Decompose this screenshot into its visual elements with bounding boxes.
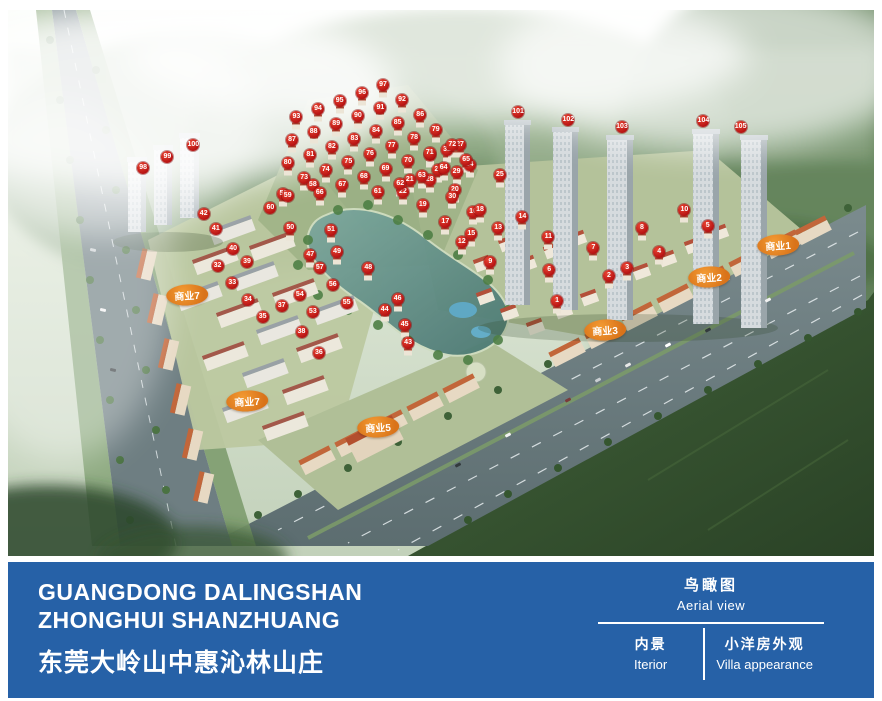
villa-roof (486, 267, 494, 274)
villa-roof (458, 247, 466, 254)
villa-roof (467, 239, 475, 246)
unit-number-marker: 84 (370, 125, 382, 137)
view-selector-panel: 鸟瞰图 Aerial view 内景 Iterior 小洋房外观 Villa a… (598, 574, 824, 680)
unit-number-marker: 39 (241, 256, 253, 268)
villa-roof (379, 90, 387, 97)
unit-number-marker: 10 (678, 204, 690, 216)
project-title-block: GUANGDONG DALINGSHAN ZHONGHUI SHANZHUANG… (38, 578, 362, 679)
unit-number-marker: 63 (416, 170, 428, 182)
unit-number-marker: 29 (451, 166, 463, 178)
project-title-en-line2: ZHONGHUI SHANZHUANG (38, 606, 362, 634)
aerial-photo: 1234567891011121314151617181920212223242… (8, 10, 874, 556)
tab-interior[interactable]: 内景 Iterior (598, 628, 703, 680)
unit-number-marker: 78 (408, 132, 420, 144)
villa-roof (404, 348, 412, 355)
unit-number-marker: 101 (512, 106, 524, 118)
unit-number-marker: 66 (314, 187, 326, 199)
villa-roof (310, 137, 318, 144)
villa-roof (494, 233, 502, 240)
unit-number-marker: 60 (264, 202, 276, 214)
villa-roof (399, 197, 407, 204)
unit-number-marker: 8 (636, 222, 648, 234)
unit-number-marker: 93 (290, 111, 302, 123)
villa-roof (416, 120, 424, 127)
unit-number-marker: 45 (399, 319, 411, 331)
unit-number-marker: 30 (446, 191, 458, 203)
villa-roof (623, 273, 631, 280)
unit-number-marker: 44 (379, 304, 391, 316)
unit-number-marker: 95 (334, 95, 346, 107)
project-title-cn: 东莞大岭山中惠沁林山庄 (38, 643, 362, 679)
villa-roof (426, 185, 434, 192)
current-view-label: 鸟瞰图 Aerial view (598, 574, 824, 624)
villa-roof (518, 222, 526, 229)
unit-number-marker: 15 (465, 228, 477, 240)
unit-number-marker: 61 (372, 186, 384, 198)
unit-number-marker: 86 (414, 109, 426, 121)
unit-number-marker: 48 (362, 262, 374, 274)
villa-roof (545, 275, 553, 282)
unit-number-marker: 59 (282, 190, 294, 202)
view-tabs: 内景 Iterior 小洋房外观 Villa appearance (598, 628, 824, 680)
unit-number-marker: 49 (331, 246, 343, 258)
project-title-en-line1: GUANGDONG DALINGSHAN (38, 578, 362, 606)
villa-roof (327, 235, 335, 242)
villa-roof (286, 233, 294, 240)
villa-roof (388, 151, 396, 158)
villa-roof (358, 98, 366, 105)
unit-number-marker: 62 (394, 178, 406, 190)
unit-number-marker: 71 (424, 147, 436, 159)
villa-roof (680, 215, 688, 222)
unit-number-marker: 68 (358, 171, 370, 183)
current-view-cn: 鸟瞰图 (598, 574, 824, 595)
unit-number-marker: 36 (313, 347, 325, 359)
unit-number-marker: 32 (212, 260, 224, 272)
unit-number-marker: 38 (296, 326, 308, 338)
villa-roof (316, 198, 324, 205)
villa-roof (419, 210, 427, 217)
unit-number-marker: 80 (282, 157, 294, 169)
unit-number-marker: 1 (551, 295, 563, 307)
villa-roof (638, 233, 646, 240)
unit-number-marker: 7 (587, 242, 599, 254)
villa-roof (284, 168, 292, 175)
unit-number-marker: 55 (341, 297, 353, 309)
unit-number-marker: 105 (735, 121, 747, 133)
villa-roof (655, 257, 663, 264)
unit-number-marker: 90 (352, 110, 364, 122)
villa-roof (292, 122, 300, 129)
unit-number-marker: 97 (377, 79, 389, 91)
unit-number-marker: 64 (438, 162, 450, 174)
unit-number-marker: 92 (396, 94, 408, 106)
villa-roof (376, 113, 384, 120)
villa-roof (364, 273, 372, 280)
unit-number-marker: 94 (312, 103, 324, 115)
unit-number-marker: 35 (257, 311, 269, 323)
tab-villa-appearance[interactable]: 小洋房外观 Villa appearance (703, 628, 824, 680)
unit-number-marker: 87 (286, 134, 298, 146)
villa-roof (382, 174, 390, 181)
unit-number-marker: 69 (380, 163, 392, 175)
unit-number-marker: 65 (460, 154, 472, 166)
unit-number-marker: 76 (364, 148, 376, 160)
villa-roof (432, 135, 440, 142)
unit-number-marker: 102 (562, 114, 574, 126)
villa-roof (496, 180, 504, 187)
unit-number-marker: 11 (542, 231, 554, 243)
unit-number-marker: 100 (187, 139, 199, 151)
villa-roof (354, 121, 362, 128)
tab-villa-en: Villa appearance (705, 657, 824, 672)
unit-number-marker: 96 (356, 87, 368, 99)
unit-number-marker: 46 (392, 293, 404, 305)
unit-number-marker: 103 (616, 121, 628, 133)
villa-roof (344, 167, 352, 174)
unit-number-marker: 77 (386, 140, 398, 152)
unit-number-marker: 25 (494, 169, 506, 181)
villa-roof (372, 136, 380, 143)
villa-roof (366, 159, 374, 166)
villa-roof (338, 191, 346, 198)
unit-number-marker: 33 (226, 277, 238, 289)
unit-number-marker: 104 (697, 115, 709, 127)
villa-roof (288, 145, 296, 152)
unit-number-marker: 81 (304, 149, 316, 161)
unit-number-marker: 4 (653, 246, 665, 258)
villa-roof (553, 306, 561, 313)
unit-number-marker: 5 (702, 220, 714, 232)
villa-roof (404, 166, 412, 173)
unit-number-marker: 98 (137, 162, 149, 174)
villa-roof (333, 257, 341, 264)
unit-number-marker: 41 (210, 223, 222, 235)
unit-number-marker: 14 (516, 211, 528, 223)
villa-roof (605, 281, 613, 288)
unit-number-marker: 83 (348, 133, 360, 145)
villa-roof (544, 242, 552, 249)
villa-roof (398, 105, 406, 112)
unit-number-marker: 51 (325, 224, 337, 236)
tab-villa-cn: 小洋房外观 (705, 634, 824, 654)
villa-roof (410, 143, 418, 150)
unit-number-marker: 42 (198, 208, 210, 220)
tab-interior-en: Iterior (598, 657, 703, 672)
villa-roof (336, 106, 344, 113)
villa-roof (350, 144, 358, 151)
unit-number-marker: 85 (392, 117, 404, 129)
villa-roof (704, 231, 712, 238)
villa-roof (589, 253, 597, 260)
unit-number-marker: 99 (161, 151, 173, 163)
unit-number-marker: 72 (446, 139, 458, 151)
villa-roof (322, 175, 330, 182)
current-view-en: Aerial view (598, 598, 824, 613)
unit-number-marker: 54 (294, 289, 306, 301)
villa-roof (306, 160, 314, 167)
unit-number-marker: 82 (326, 141, 338, 153)
brochure-page: 1234567891011121314151617181920212223242… (0, 0, 882, 701)
unit-number-marker: 19 (417, 199, 429, 211)
unit-number-marker: 70 (402, 155, 414, 167)
villa-roof (394, 128, 402, 135)
unit-number-marker: 6 (543, 264, 555, 276)
unit-number-marker: 75 (342, 156, 354, 168)
unit-number-marker: 34 (242, 294, 254, 306)
unit-number-marker: 89 (330, 118, 342, 130)
unit-number-marker: 67 (336, 179, 348, 191)
unit-number-marker: 18 (474, 204, 486, 216)
villa-roof (314, 114, 322, 121)
unit-number-marker: 43 (402, 337, 414, 349)
unit-number-marker: 57 (314, 262, 326, 274)
villa-roof (332, 129, 340, 136)
aerial-rendering-image (8, 10, 874, 556)
tab-interior-cn: 内景 (598, 634, 703, 654)
villa-roof (441, 227, 449, 234)
villa-roof (448, 202, 456, 209)
villa-roof (360, 182, 368, 189)
unit-number-marker: 40 (227, 243, 239, 255)
unit-number-marker: 91 (374, 102, 386, 114)
unit-number-marker: 37 (276, 300, 288, 312)
villa-roof (328, 152, 336, 159)
unit-number-marker: 56 (327, 279, 339, 291)
unit-number-marker: 79 (430, 124, 442, 136)
unit-number-marker: 13 (492, 222, 504, 234)
unit-number-marker: 53 (307, 306, 319, 318)
villa-roof (394, 304, 402, 311)
unit-number-marker: 50 (284, 222, 296, 234)
unit-number-marker: 17 (439, 216, 451, 228)
swimming-pool (449, 302, 477, 318)
caption-bar: GUANGDONG DALINGSHAN ZHONGHUI SHANZHUANG… (8, 562, 874, 698)
unit-number-marker: 73 (298, 172, 310, 184)
unit-number-marker: 3 (621, 262, 633, 274)
unit-number-marker: 2 (603, 270, 615, 282)
unit-number-marker: 88 (308, 126, 320, 138)
unit-number-marker: 47 (304, 249, 316, 261)
villa-roof (374, 197, 382, 204)
unit-number-marker: 9 (484, 256, 496, 268)
villa-roof (381, 315, 389, 322)
unit-number-marker: 74 (320, 164, 332, 176)
